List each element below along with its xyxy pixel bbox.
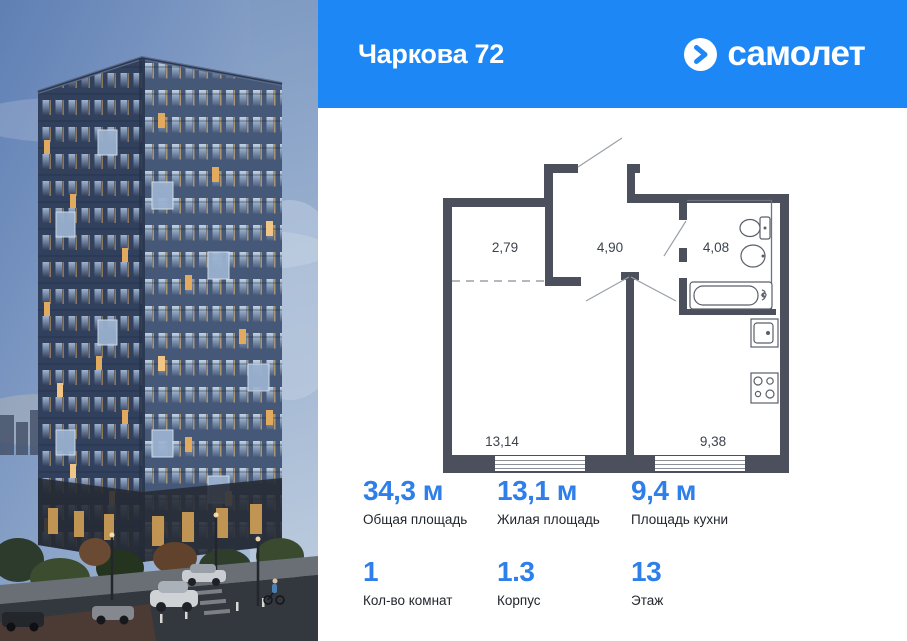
stat-building-label: Корпус — [497, 593, 627, 608]
room-area-kitchen: 9,38 — [700, 434, 726, 449]
room-area-bathroom: 4,08 — [703, 240, 729, 255]
tower — [38, 58, 282, 562]
floor-plan-drawing: 2,79 4,90 4,08 13,14 9,38 — [438, 128, 794, 482]
building-photo — [0, 0, 318, 641]
stat-rooms-count-label: Кол-во комнат — [363, 593, 493, 608]
stat-building-value: 1.3 — [497, 558, 627, 586]
stat-total-area: 34,3 м Общая площадь — [363, 477, 493, 527]
stat-kitchen-area-label: Площадь кухни — [631, 512, 761, 527]
project-title: Чаркова 72 — [358, 39, 504, 70]
stat-living-area: 13,1 м Жилая площадь — [497, 477, 627, 527]
room-area-living: 13,14 — [485, 434, 519, 449]
stat-rooms-count-value: 1 — [363, 558, 493, 586]
stat-building: 1.3 Корпус — [497, 558, 627, 608]
brand-name: самолет — [727, 34, 865, 74]
stat-living-area-value: 13,1 м — [497, 477, 627, 505]
brand-logo[interactable]: самолет — [684, 0, 865, 108]
stat-floor: 13 Этаж — [631, 558, 761, 608]
room-area-hallway: 2,79 — [492, 240, 518, 255]
room-area-hall: 4,90 — [597, 240, 623, 255]
bathroom-fixtures — [690, 217, 772, 309]
stat-kitchen-area: 9,4 м Площадь кухни — [631, 477, 761, 527]
stat-rooms-count: 1 Кол-во комнат — [363, 558, 493, 608]
stat-total-area-label: Общая площадь — [363, 512, 493, 527]
kitchen-fixtures — [751, 319, 778, 403]
building-photo-art — [0, 0, 318, 641]
header-bar: Чаркова 72 самолет — [318, 0, 907, 108]
brand-circle-arrow-icon — [684, 38, 717, 71]
stat-total-area-value: 34,3 м — [363, 477, 493, 505]
stat-kitchen-area-value: 9,4 м — [631, 477, 761, 505]
walls — [443, 164, 789, 473]
floor-plan: 2,79 4,90 4,08 13,14 9,38 — [438, 128, 794, 482]
stat-living-area-label: Жилая площадь — [497, 512, 627, 527]
stat-floor-label: Этаж — [631, 593, 761, 608]
stat-floor-value: 13 — [631, 558, 761, 586]
